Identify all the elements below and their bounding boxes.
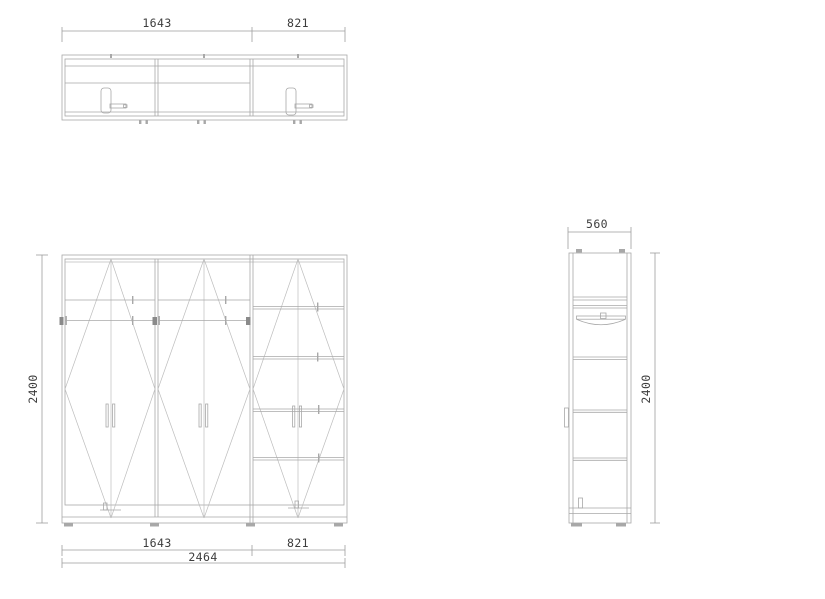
dim-label-side-height: 2400: [639, 374, 653, 403]
dim-label-plan-left-width: 1643: [142, 16, 171, 30]
plan-cabinet: [62, 54, 347, 124]
dim-label-plan-right-width: 821: [287, 16, 309, 30]
front-base-fittings: [100, 501, 309, 510]
front-interior-shelves-rails: [60, 296, 345, 463]
front-dimension-height: 2400: [26, 255, 48, 523]
dim-label-front-left-width: 1643: [142, 536, 171, 550]
side-view: 560 2400: [565, 217, 661, 527]
plan-view: 1643 821: [62, 16, 347, 124]
side-lift-bar: [577, 313, 626, 325]
dim-label-front-right-width: 821: [287, 536, 309, 550]
drawing-canvas: 1643 821: [0, 0, 825, 599]
plan-lift-mechanism-left: [101, 88, 127, 113]
technical-drawing: 1643 821: [0, 0, 825, 599]
side-base-fitting: [579, 498, 583, 508]
plan-lift-mechanism-right: [286, 88, 313, 115]
dim-label-side-depth: 560: [586, 217, 608, 231]
side-dimension-height: 2400: [639, 253, 660, 523]
front-door-swing-symbols: [65, 259, 344, 518]
dim-label-front-total-width: 2464: [188, 550, 217, 564]
side-door-handle: [565, 408, 569, 427]
dim-label-front-height: 2400: [26, 374, 40, 403]
front-view: 2400: [26, 255, 347, 568]
front-cabinet: [62, 255, 347, 527]
plan-dimension-top: 1643 821: [62, 16, 345, 42]
side-cabinet: [565, 249, 632, 527]
side-dimension-depth: 560: [568, 217, 631, 249]
front-dimension-bottom: 1643 821 2464: [62, 536, 345, 568]
